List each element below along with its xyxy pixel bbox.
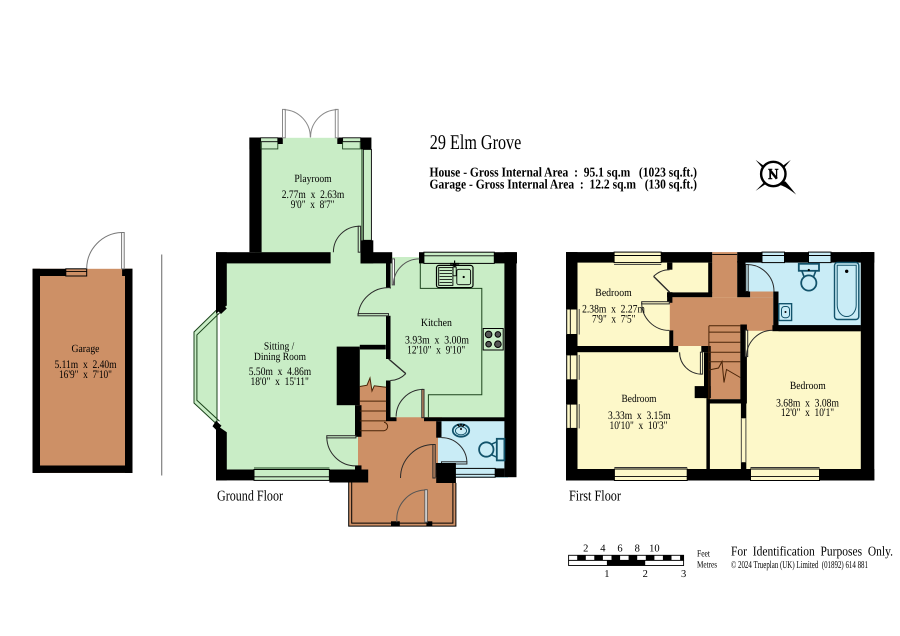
- svg-text:2: 2: [643, 569, 648, 580]
- svg-text:3: 3: [681, 569, 686, 580]
- svg-text:Playroom: Playroom: [294, 173, 332, 185]
- svg-text:2: 2: [583, 544, 588, 555]
- svg-text:8: 8: [635, 544, 640, 555]
- svg-text:Dining Room: Dining Room: [254, 351, 306, 363]
- svg-text:29 Elm Grove: 29 Elm Grove: [430, 130, 522, 154]
- svg-text:Bedroom: Bedroom: [595, 287, 632, 299]
- svg-text:Bedroom: Bedroom: [790, 380, 826, 392]
- svg-text:Kitchen: Kitchen: [421, 317, 453, 329]
- svg-text:First Floor: First Floor: [569, 489, 621, 505]
- svg-text:Bedroom: Bedroom: [622, 393, 657, 405]
- svg-text:18'0" x 15'11": 18'0" x 15'11": [251, 376, 309, 388]
- svg-text:Garage - Gross Internal Area: Garage - Gross Internal Area : 12.2 sq.m…: [430, 177, 698, 192]
- svg-text:Ground Floor: Ground Floor: [217, 489, 283, 505]
- svg-text:12'10" x 9'10": 12'10" x 9'10": [407, 344, 465, 356]
- svg-text:Garage: Garage: [72, 343, 100, 355]
- svg-text:For Identification Purposes: For Identification Purposes Only.: [731, 544, 893, 559]
- svg-text:© 2024 Trueplan (UK) Limited: © 2024 Trueplan (UK) Limited (01892) 614…: [731, 560, 868, 571]
- svg-text:Feet: Feet: [697, 550, 710, 560]
- svg-text:16'9" x 7'10": 16'9" x 7'10": [59, 369, 112, 381]
- svg-text:7'9" x 7'5": 7'9" x 7'5": [592, 313, 635, 325]
- svg-text:4: 4: [600, 544, 606, 555]
- svg-text:10: 10: [649, 544, 660, 555]
- svg-text:10'10" x 10'3": 10'10" x 10'3": [610, 420, 668, 432]
- svg-text:Metres: Metres: [697, 561, 717, 571]
- svg-text:12'0" x 10'1": 12'0" x 10'1": [781, 407, 834, 419]
- svg-text:9'0" x 8'7": 9'0" x 8'7": [291, 199, 335, 211]
- svg-text:1: 1: [604, 569, 609, 580]
- svg-text:6: 6: [617, 544, 622, 555]
